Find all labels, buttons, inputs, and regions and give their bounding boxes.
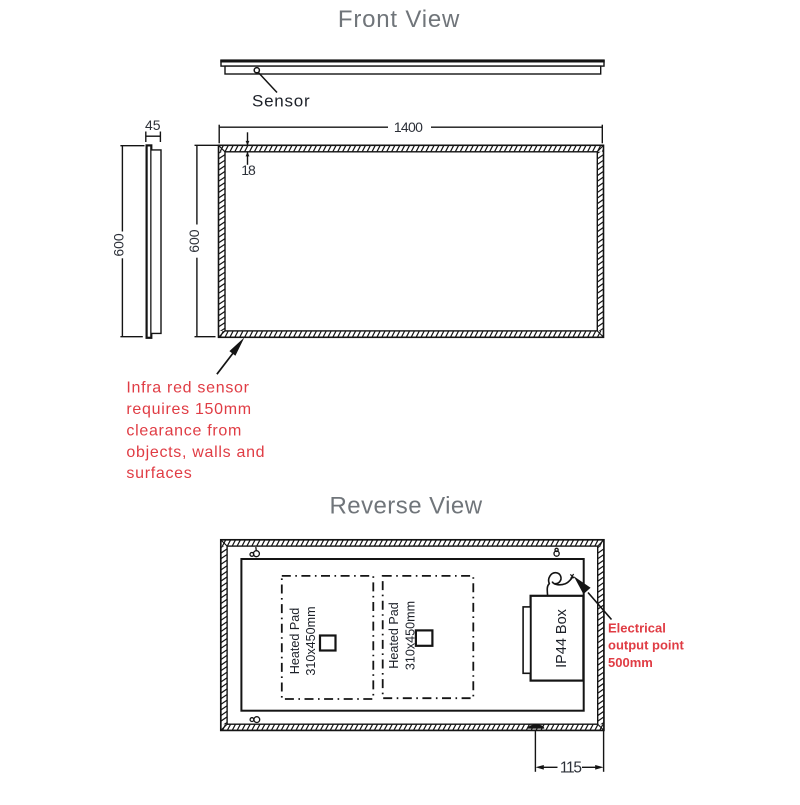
svg-text:Front View: Front View xyxy=(338,6,460,33)
svg-text:600: 600 xyxy=(186,229,202,253)
svg-text:objects, walls and: objects, walls and xyxy=(126,444,265,461)
svg-text:output point: output point xyxy=(608,638,684,653)
svg-text:Sensor: Sensor xyxy=(252,91,310,110)
svg-text:115: 115 xyxy=(560,760,581,777)
svg-text:500mm: 500mm xyxy=(608,655,653,670)
svg-text:surfaces: surfaces xyxy=(126,465,192,482)
svg-text:clearance from: clearance from xyxy=(126,422,242,439)
svg-text:Reverse View: Reverse View xyxy=(329,493,482,520)
svg-text:Heated Pad: Heated Pad xyxy=(387,602,401,669)
svg-text:requires 150mm: requires 150mm xyxy=(126,401,251,418)
svg-text:45: 45 xyxy=(145,117,161,133)
svg-text:Heated Pad: Heated Pad xyxy=(288,608,302,675)
svg-text:Infra red sensor: Infra red sensor xyxy=(126,380,249,397)
svg-text:Electrical: Electrical xyxy=(608,620,666,635)
svg-text:600: 600 xyxy=(110,233,126,257)
svg-text:18: 18 xyxy=(241,162,256,178)
svg-text:310x450mm: 310x450mm xyxy=(304,606,318,675)
svg-text:IP44 Box: IP44 Box xyxy=(554,608,570,668)
svg-text:1400: 1400 xyxy=(394,119,423,135)
